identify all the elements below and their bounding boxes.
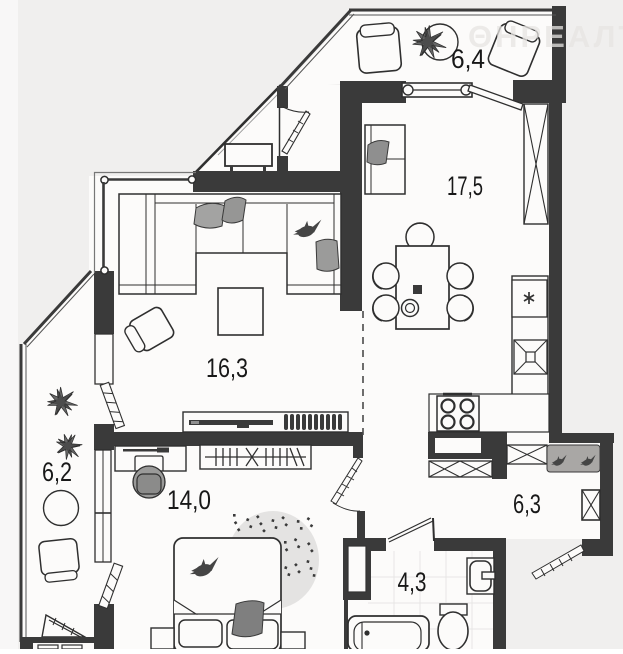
svg-text:14,0: 14,0: [167, 485, 211, 515]
svg-text:17,5: 17,5: [447, 171, 483, 201]
svg-text:ΘHPEАЛТ: ΘHPEАЛТ: [468, 19, 623, 54]
svg-text:6,3: 6,3: [513, 489, 541, 519]
svg-text:6,2: 6,2: [42, 457, 72, 487]
svg-text:4,3: 4,3: [398, 567, 427, 597]
svg-text:16,3: 16,3: [206, 353, 248, 383]
